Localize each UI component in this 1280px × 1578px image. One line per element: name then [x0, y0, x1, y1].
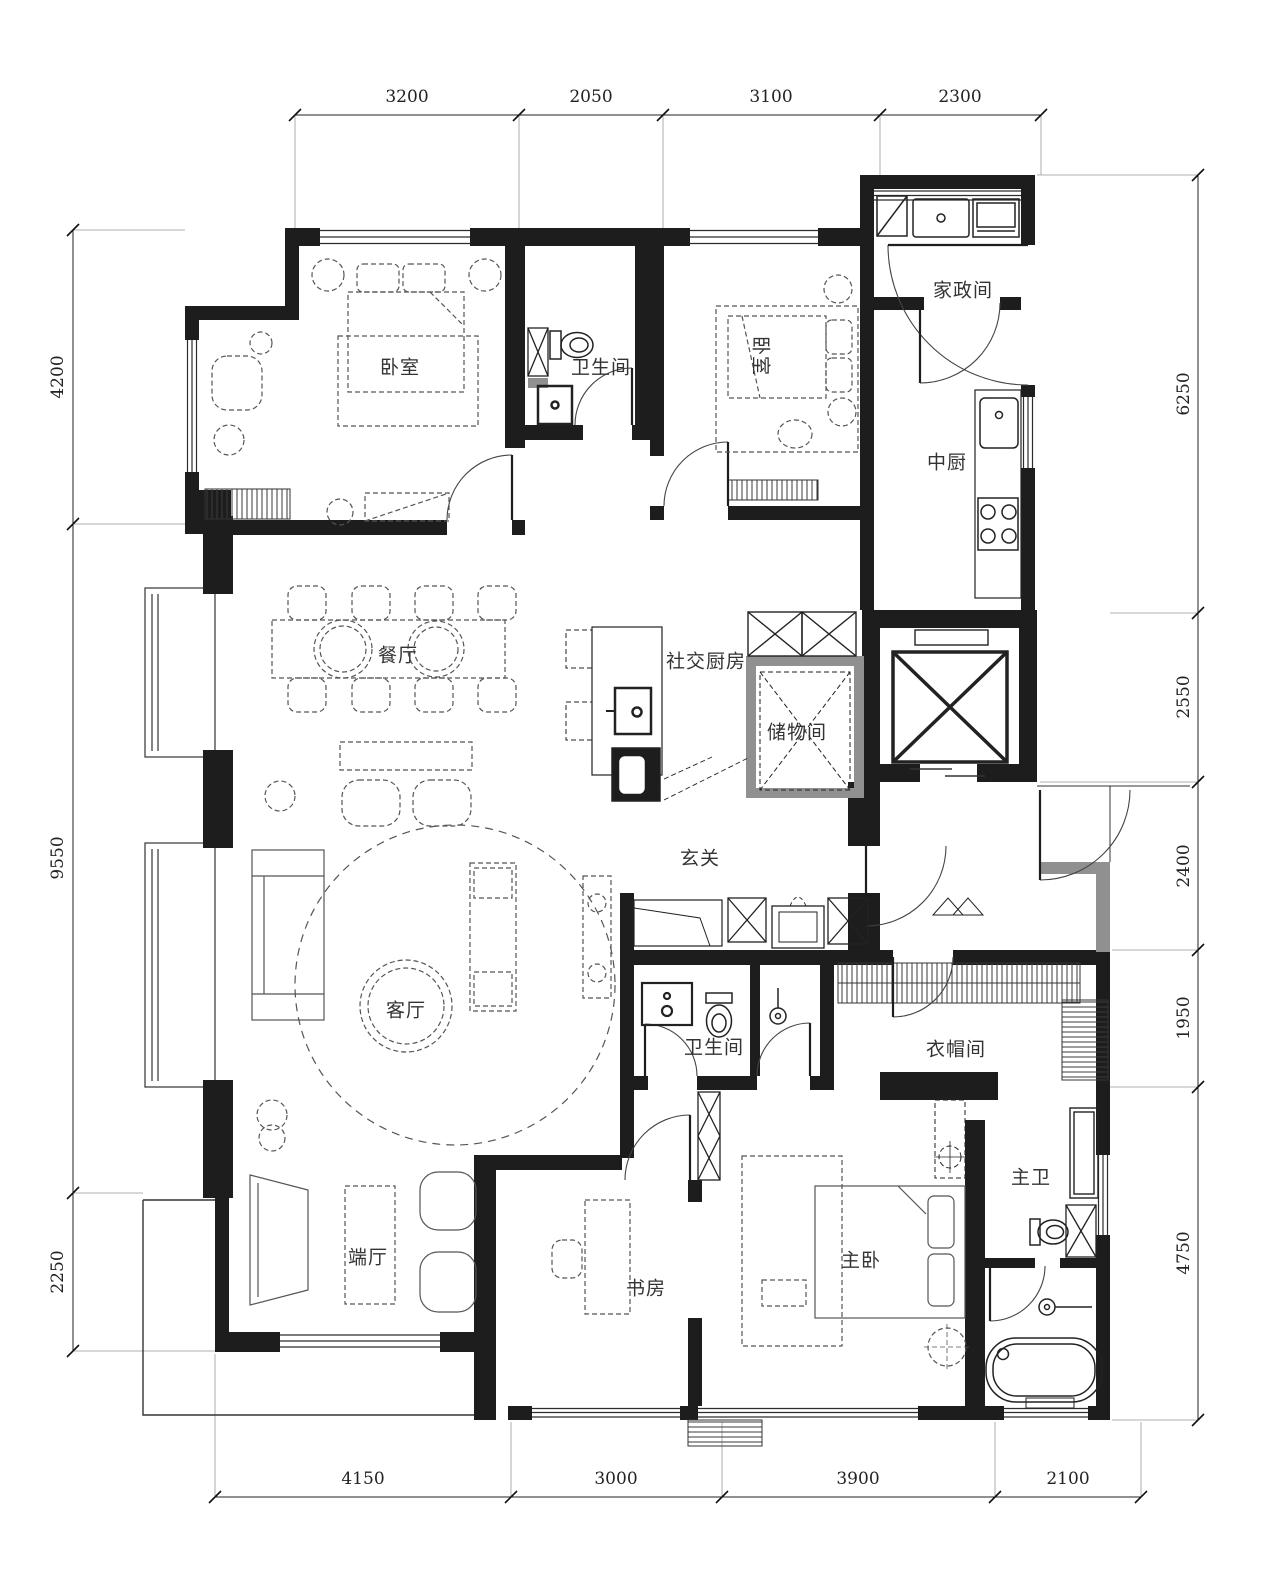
dim-right-4: 1950	[1174, 996, 1194, 1039]
dim-bottom-1: 4150	[341, 1469, 384, 1489]
ac-hatch	[688, 1420, 762, 1446]
kitchen-counter	[975, 390, 1021, 598]
dim-left-3: 2250	[48, 1250, 68, 1293]
laundry-sink	[913, 199, 969, 237]
armchair	[212, 356, 262, 455]
living-rug	[295, 825, 615, 1145]
island-sink	[606, 688, 651, 734]
exterior-outline	[143, 786, 1190, 1415]
bench	[762, 1280, 806, 1306]
washing-machine	[973, 199, 1019, 237]
dim-bottom-4: 2100	[1046, 1469, 1089, 1489]
tall-cabinet	[1070, 1108, 1098, 1198]
room-label-bedroom-2: 卧室	[749, 336, 776, 376]
room-label-social-kitchen: 社交厨房	[666, 647, 746, 674]
foyer-cabinet-x	[728, 898, 766, 942]
room-label-bedroom-1: 卧室	[380, 353, 420, 380]
armchair	[778, 420, 812, 448]
dim-top-4: 2300	[938, 87, 981, 107]
room-label-master-bedroom: 主卧	[841, 1246, 881, 1273]
radiator	[728, 480, 818, 500]
sofa	[252, 850, 324, 1020]
rug	[716, 306, 858, 452]
vanity	[934, 1100, 966, 1178]
wardrobe-x	[748, 612, 856, 656]
foyer-bench	[634, 900, 722, 946]
shaft-x	[528, 328, 548, 376]
dim-right-1: 6250	[1174, 372, 1194, 415]
ceiling-symbol	[257, 781, 295, 1130]
ceiling-symbol	[259, 1125, 285, 1151]
bed	[815, 1186, 965, 1318]
counter-dashed	[566, 630, 592, 668]
shower-head	[1039, 1299, 1092, 1315]
black-cabinet	[612, 748, 660, 801]
foyer-basin	[772, 897, 824, 948]
toilet	[1030, 1219, 1068, 1245]
entry-threshold	[933, 898, 983, 915]
room-label-foyer: 玄关	[680, 844, 720, 871]
bathtub	[986, 1338, 1102, 1408]
counter-dashed	[566, 702, 592, 740]
sink	[642, 983, 692, 1025]
room-label-laundry: 家政间	[933, 276, 993, 303]
dim-top-1: 3200	[385, 87, 428, 107]
room-label-bathroom-2: 卫生间	[684, 1033, 744, 1060]
ceiling-symbol	[824, 275, 856, 426]
tv-cabinet	[583, 876, 611, 998]
floor-transition	[664, 757, 750, 800]
room-label-cloakroom: 衣帽间	[926, 1035, 986, 1062]
floor-plan: 卧室 卫生间 卧室 家政间 中厨 餐厅 社交厨房 储物间 玄关 客厅 卫生间 衣…	[0, 0, 1280, 1578]
room-label-storage: 储物间	[767, 718, 827, 745]
stove	[978, 498, 1018, 550]
dim-right-5: 4750	[1174, 1231, 1194, 1274]
shower-head	[770, 988, 786, 1024]
dim-left-2: 9550	[48, 836, 68, 879]
dim-right-3: 2400	[1174, 844, 1194, 887]
bed	[728, 316, 852, 398]
dim-top-2: 2050	[569, 87, 612, 107]
dresser	[365, 493, 449, 521]
room-label-bathroom-1: 卫生间	[571, 353, 631, 380]
rug	[338, 336, 478, 426]
dim-bottom-2: 3000	[594, 1469, 637, 1489]
floor-plan-drawing	[0, 0, 1280, 1578]
dim-left-1: 4200	[48, 355, 68, 398]
kitchen-sink	[980, 398, 1018, 448]
dim-bottom-3: 3900	[836, 1469, 879, 1489]
room-label-study: 书房	[626, 1274, 666, 1301]
room-label-dining: 餐厅	[378, 641, 418, 668]
toilet	[706, 993, 732, 1037]
room-label-living: 客厅	[386, 996, 426, 1023]
chaise	[470, 863, 516, 1011]
chairs	[420, 1172, 476, 1312]
room-label-end-hall: 端厅	[348, 1243, 388, 1270]
console-table	[340, 742, 472, 770]
elevator	[893, 630, 1007, 762]
room-label-master-bath: 主卫	[1011, 1163, 1051, 1190]
tv-stand	[250, 1175, 308, 1305]
dim-top-3: 3100	[749, 87, 792, 107]
armchairs	[342, 780, 471, 826]
sink	[538, 386, 572, 424]
room-label-chinese-kitchen: 中厨	[927, 448, 967, 475]
closet-hatch	[1062, 1000, 1108, 1080]
wardrobe-x	[698, 1092, 720, 1180]
desk	[552, 1200, 630, 1314]
dim-right-2: 2550	[1174, 675, 1194, 718]
shower-x	[1066, 1205, 1096, 1257]
ceiling-symbol	[924, 1324, 970, 1370]
radiator	[205, 489, 290, 519]
